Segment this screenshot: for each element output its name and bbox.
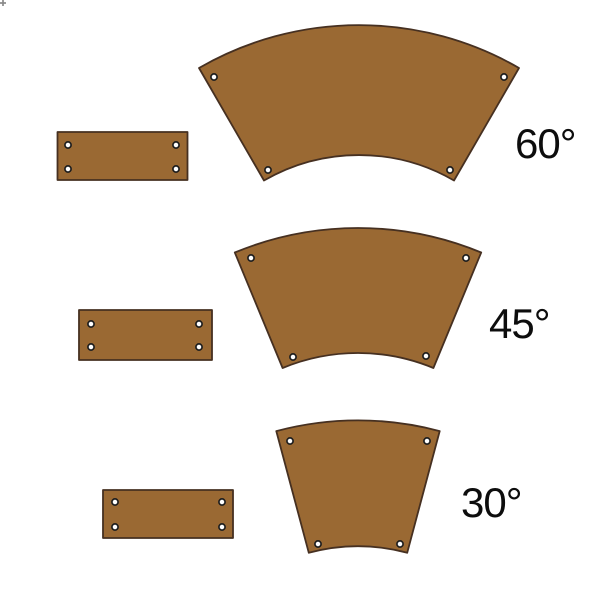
screw-hole [65, 142, 71, 148]
angle-label-45: 45° [489, 303, 550, 345]
straight-board-45-shape [79, 310, 212, 360]
curved-board-60-shape [199, 25, 519, 180]
curved-board-30 [276, 420, 439, 552]
screw-hole [423, 353, 429, 359]
straight-board-45 [79, 310, 212, 360]
screw-hole [447, 167, 453, 173]
screw-hole [248, 255, 254, 261]
curved-board-45 [235, 228, 481, 368]
corner-artifact [0, 0, 6, 6]
screw-hole [290, 354, 296, 360]
straight-board-30 [103, 490, 233, 538]
screw-hole [173, 142, 179, 148]
screw-hole [196, 344, 202, 350]
screw-hole [196, 321, 202, 327]
screw-hole [112, 524, 118, 530]
screw-hole [287, 438, 293, 444]
screw-hole [424, 438, 430, 444]
screw-hole [88, 344, 94, 350]
straight-board-30-shape [103, 490, 233, 538]
screw-hole [88, 321, 94, 327]
screw-hole [265, 167, 271, 173]
screw-hole [211, 74, 217, 80]
screw-hole [65, 166, 71, 172]
screw-hole [112, 499, 118, 505]
screw-hole [397, 541, 403, 547]
screw-hole [501, 74, 507, 80]
straight-board-60-shape [58, 132, 188, 180]
straight-board-60 [58, 132, 188, 180]
screw-hole [219, 524, 225, 530]
curved-board-45-shape [235, 228, 481, 368]
angle-label-60: 60° [515, 123, 576, 165]
screw-hole [315, 541, 321, 547]
curved-board-30-shape [276, 420, 439, 552]
screw-hole [173, 166, 179, 172]
curved-board-60 [199, 25, 519, 180]
screw-hole [219, 499, 225, 505]
diagram-canvas: 60° 45° 30° [0, 0, 600, 600]
screw-hole [463, 255, 469, 261]
angle-label-30: 30° [461, 482, 522, 524]
